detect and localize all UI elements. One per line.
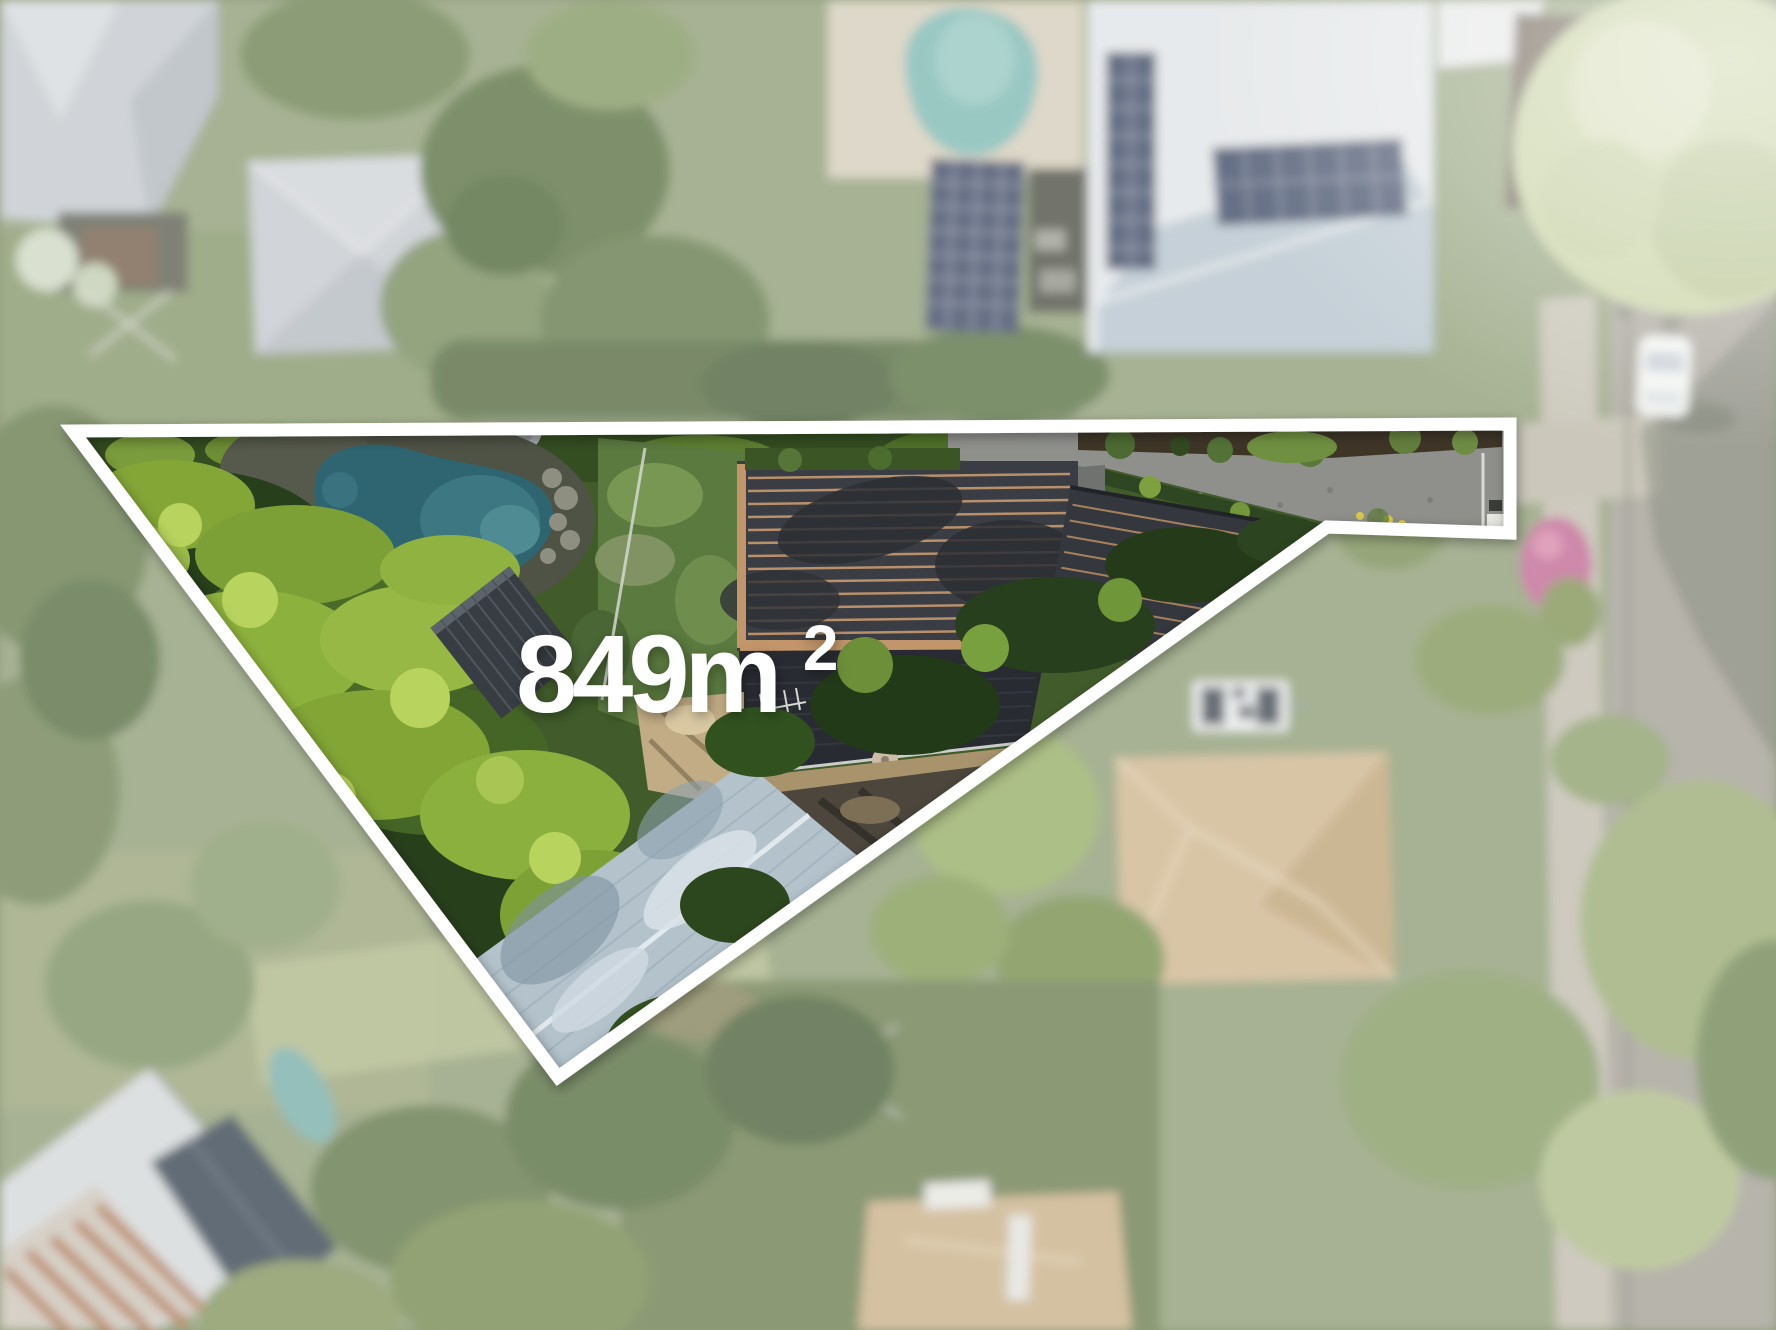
aerial-photo-canvas: 849m 2 [0, 0, 1776, 1330]
area-label: 849m 2 [516, 612, 837, 736]
area-exponent: 2 [803, 612, 837, 684]
area-value: 849m [516, 613, 777, 736]
aerial-photo: 849m 2 [0, 0, 1776, 1330]
